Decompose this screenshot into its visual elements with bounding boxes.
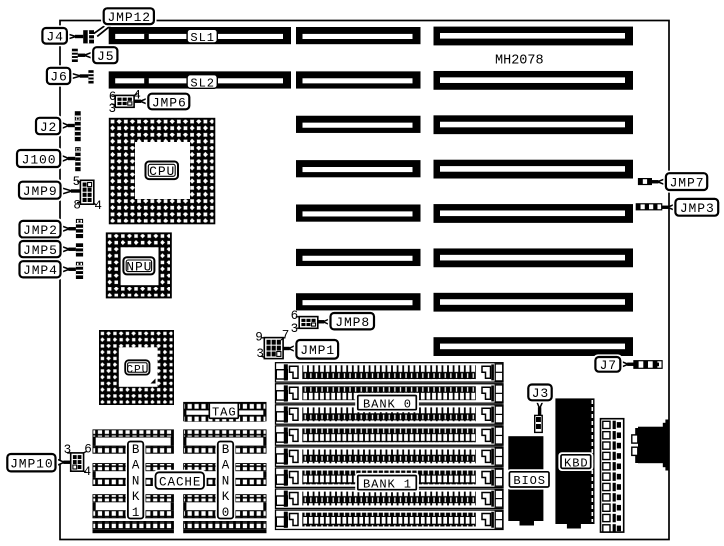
svg-text:3: 3 [256, 347, 264, 361]
svg-text:J100: J100 [22, 152, 57, 167]
svg-text:JMP1: JMP1 [300, 343, 335, 358]
svg-text:JMP7: JMP7 [670, 175, 705, 190]
svg-text:J4: J4 [46, 30, 63, 45]
svg-text:JMP10: JMP10 [10, 457, 54, 472]
svg-text:J6: J6 [50, 70, 67, 85]
svg-text:JMP3: JMP3 [680, 201, 715, 216]
svg-text:CPU: CPU [126, 364, 149, 376]
svg-text:7: 7 [282, 329, 290, 343]
svg-text:JMP4: JMP4 [23, 263, 58, 278]
svg-text:B: B [222, 443, 230, 457]
svg-text:BANK 1: BANK 1 [363, 477, 412, 491]
svg-text:1: 1 [132, 506, 140, 520]
svg-text:6: 6 [84, 443, 92, 457]
svg-text:N: N [132, 474, 140, 488]
svg-text:J3: J3 [532, 386, 549, 401]
svg-text:J2: J2 [40, 120, 57, 135]
svg-text:A: A [132, 459, 140, 473]
svg-text:NPU: NPU [126, 260, 152, 275]
svg-text:8: 8 [73, 198, 81, 212]
svg-text:TAG: TAG [212, 405, 236, 419]
svg-text:JMP6: JMP6 [152, 95, 187, 110]
svg-text:N: N [222, 474, 230, 488]
svg-text:SL1: SL1 [190, 31, 214, 45]
svg-text:JMP2: JMP2 [23, 223, 58, 238]
svg-text:BIOS: BIOS [513, 474, 546, 488]
svg-text:0: 0 [222, 506, 230, 520]
svg-text:J7: J7 [600, 358, 617, 373]
svg-text:SL2: SL2 [190, 76, 214, 90]
svg-text:JMP9: JMP9 [23, 184, 58, 199]
svg-text:3: 3 [64, 443, 72, 457]
svg-text:CACHE: CACHE [159, 475, 201, 489]
svg-text:4: 4 [94, 199, 102, 213]
svg-text:J5: J5 [97, 49, 114, 64]
svg-text:BANK 0: BANK 0 [363, 397, 412, 411]
svg-text:KBD: KBD [564, 456, 588, 470]
svg-text:B: B [132, 443, 140, 457]
svg-text:K: K [132, 490, 140, 504]
svg-text:JMP12: JMP12 [107, 10, 151, 25]
svg-text:JMP5: JMP5 [23, 243, 58, 258]
svg-text:JMP8: JMP8 [335, 315, 370, 330]
svg-text:A: A [222, 459, 230, 473]
svg-text:MH2078: MH2078 [495, 54, 544, 69]
svg-text:K: K [222, 490, 230, 504]
